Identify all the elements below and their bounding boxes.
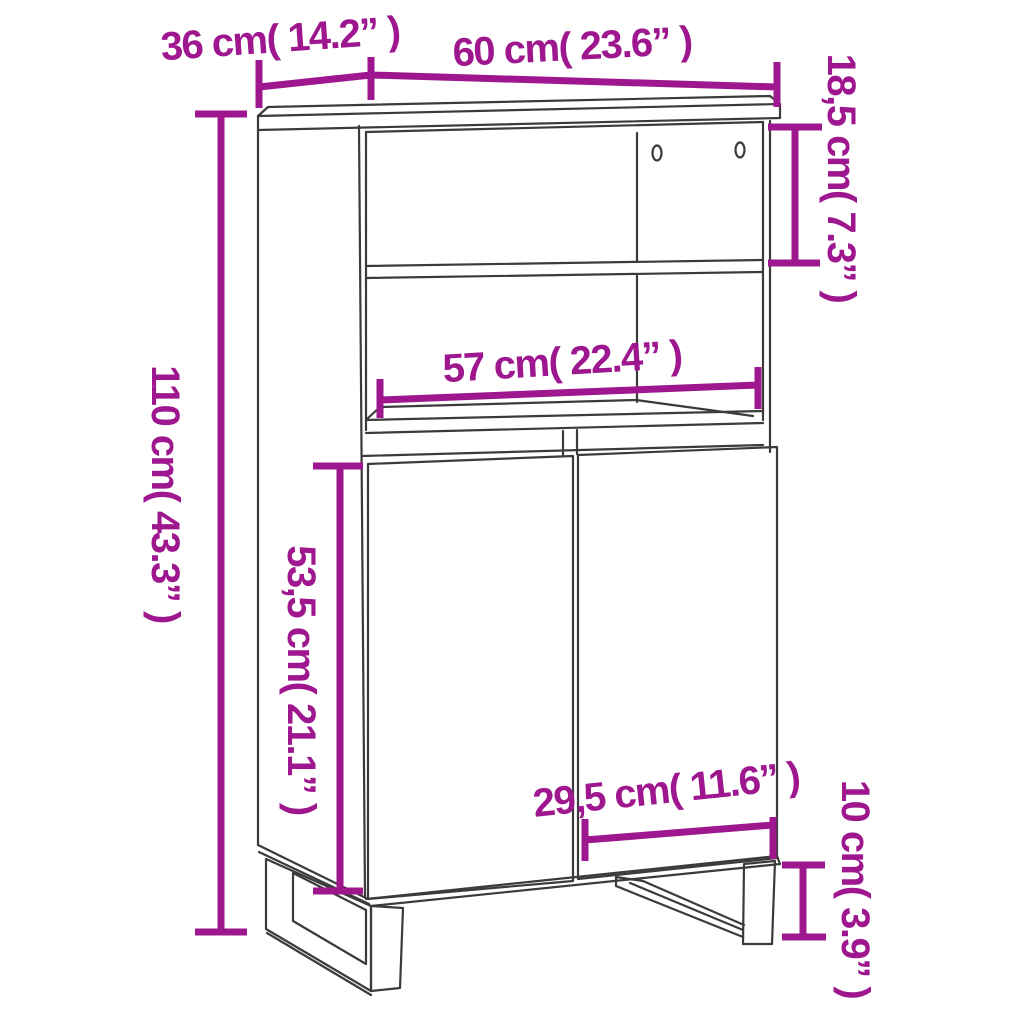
bottom-shelf: [366, 400, 763, 433]
diagram-canvas: 36 cm( 14.2” ) 60 cm( 23.6” ) 18,5 cm( 7…: [0, 0, 1024, 1024]
open-shelf-interior: [366, 121, 770, 452]
left-leg: [266, 859, 403, 995]
middle-shelf: [366, 260, 762, 278]
height-label: 110 cm( 43.3” ): [143, 365, 187, 623]
left-leg-outer: [266, 859, 371, 991]
right-leg-rail: [616, 877, 744, 937]
top-panel: [258, 96, 780, 130]
door-width-dimension-line: [585, 817, 773, 861]
top-compartment-label: 18,5 cm( 7.3” ): [819, 54, 863, 303]
left-side-front-edge: [359, 126, 365, 897]
dimension-diagram: 36 cm( 14.2” ) 60 cm( 23.6” ) 18,5 cm( 7…: [0, 0, 1024, 1024]
dimension-labels: 36 cm( 14.2” ) 60 cm( 23.6” ) 18,5 cm( 7…: [143, 9, 877, 999]
door-section-label: 53,5 cm( 21.1” ): [279, 545, 323, 815]
height-dimension-line: [195, 114, 247, 932]
top-panel-front-face: [258, 104, 780, 130]
front-rail: [362, 430, 763, 456]
left-door: [368, 456, 573, 899]
left-side-bottom-edge: [258, 845, 369, 904]
width-label: 60 cm( 23.6” ): [451, 19, 692, 75]
door-width-label: 29,5 cm( 11.6” ): [531, 754, 802, 826]
leg-height-label: 10 cm( 3.9” ): [833, 780, 877, 999]
cabinet-drawing: [258, 96, 780, 995]
depth-dimension-line: [259, 57, 371, 108]
depth-label: 36 cm( 14.2” ): [159, 9, 401, 70]
mounting-hole-right: [736, 143, 745, 158]
top-compartment-dimension-line: [768, 127, 822, 263]
leg-height-dimension-line: [782, 865, 826, 937]
inner-width-label: 57 cm( 22.4” ): [441, 333, 683, 392]
left-leg-bottom-thickness: [267, 933, 371, 995]
mounting-hole-left: [653, 146, 662, 161]
right-leg-post: [743, 861, 775, 944]
interior-right-edge: [763, 121, 770, 452]
left-leg-post-side: [371, 906, 403, 991]
